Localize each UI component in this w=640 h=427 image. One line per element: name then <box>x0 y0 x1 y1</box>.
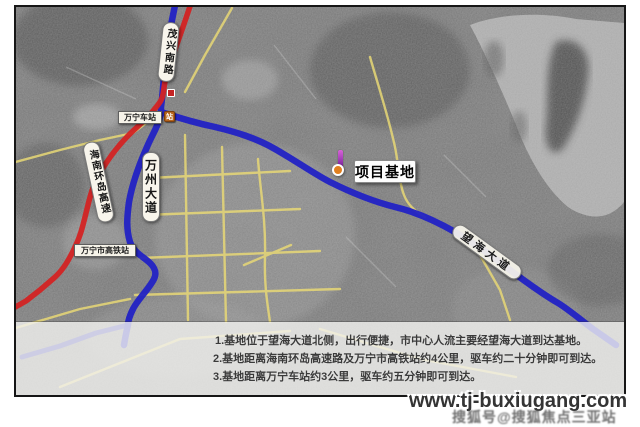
project-base-marker <box>334 166 342 174</box>
watermark-secondary: 搜狐号@搜狐焦点三亚站 <box>452 407 617 427</box>
caption-divider <box>16 321 624 322</box>
poi-marker-icon <box>167 89 175 97</box>
map-frame: 茂兴南路 万宁车站 站 海南环岛高速 万州大道 万宁市高铁站 项目基地 望海大道… <box>14 5 626 397</box>
caption-line-1: 1.基地位于望海大道北侧，出行便捷，市中心人流主要经望海大道到达基地。 <box>215 332 587 348</box>
project-base-label: 项目基地 <box>354 160 416 183</box>
caption-line-2: 2.基地距离海南环岛高速路及万宁市高铁站约4公里，驱车约二十分钟即可到达。 <box>213 350 602 366</box>
caption-line-3: 3.基地距离万宁车站约3公里，驱车约五分钟即可到达。 <box>213 368 481 384</box>
wanning-station-label: 万宁车站 <box>118 111 162 124</box>
hsr-station-label: 万宁市高铁站 <box>74 244 136 257</box>
road-label-wanzhou: 万州大道 <box>142 152 160 222</box>
train-station-icon: 站 <box>164 111 175 122</box>
page-background: 茂兴南路 万宁车站 站 海南环岛高速 万州大道 万宁市高铁站 项目基地 望海大道… <box>0 0 640 427</box>
